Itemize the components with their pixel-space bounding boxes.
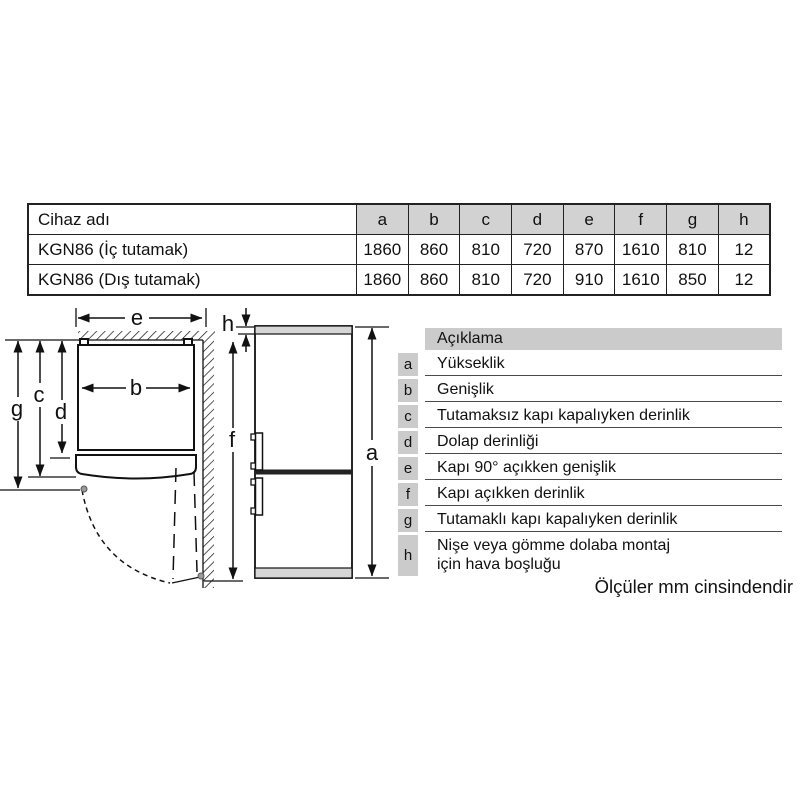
legend-text: Kapı 90° açıkken genişlik [425,457,782,480]
table-row: KGN86 (İç tutamak) 1860 860 810 720 870 … [28,235,770,265]
legend-title: Açıklama [425,328,782,350]
dim-label-e: e [131,305,143,330]
dim-label-g: g [11,396,23,421]
value-cell: 860 [408,265,460,296]
dim-label-h: h [222,311,234,336]
dim-label-d: d [55,399,67,424]
legend-item-h: h Nişe veya gömme dolaba montaj için hav… [398,535,782,576]
dim-label-f: f [229,427,236,452]
legend-item-f: f Kapı açıkken derinlik [398,483,782,506]
col-header-e: e [563,204,615,235]
fridge-top-cap [255,326,352,334]
legend-text: Dolap derinliği [425,431,782,454]
device-name-cell: KGN86 (Dış tutamak) [28,265,357,296]
value-cell: 720 [512,265,564,296]
dim-label-b: b [130,375,142,400]
value-cell: 860 [408,235,460,265]
legend-item-e: e Kapı 90° açıkken genişlik [398,457,782,480]
value-cell: 810 [460,265,512,296]
legend-key: e [398,457,418,480]
value-cell: 12 [718,265,770,296]
value-cell: 850 [667,265,719,296]
door-swing-arc [81,468,204,583]
dimension-a: a [355,327,389,578]
door-handle-lower [251,478,263,515]
legend-key: c [398,405,418,428]
value-cell: 810 [667,235,719,265]
fridge-top-view [76,339,196,479]
hinge-dot [81,486,87,492]
value-cell: 1610 [615,265,667,296]
spec-sheet-page: Cihaz adı a b c d e f g h KGN86 (İç tuta… [0,0,800,800]
legend-header-row: Açıklama [398,328,782,350]
legend-item-g: g Tutamaklı kapı kapalıyken derinlik [398,509,782,532]
value-cell: 1860 [357,265,409,296]
fridge-plinth [255,568,352,578]
legend-text: Yükseklik [425,353,782,376]
legend-key: g [398,509,418,532]
legend-text: Kapı açıkken derinlik [425,483,782,506]
legend-text: Genişlik [425,379,782,402]
legend-item-a: a Yükseklik [398,353,782,376]
legend-text: Tutamaksız kapı kapalıyken derinlik [425,405,782,428]
dim-label-c: c [34,382,45,407]
dimension-spec-table: Cihaz adı a b c d e f g h KGN86 (İç tuta… [27,203,771,296]
legend-key-empty [398,328,418,350]
col-header-b: b [408,204,460,235]
legend-key: d [398,431,418,454]
legend-text: Nişe veya gömme dolaba montaj için hava … [425,535,687,576]
value-cell: 810 [460,235,512,265]
legend-key: a [398,353,418,376]
legend-item-c: c Tutamaksız kapı kapalıyken derinlik [398,405,782,428]
col-header-g: g [667,204,719,235]
dimension-e: e [76,305,206,330]
col-header-a: a [357,204,409,235]
legend-item-d: d Dolap derinliği [398,431,782,454]
fridge-front-view [251,326,352,578]
dimension-diagram: e h g c d [0,300,400,610]
legend-text: Tutamaklı kapı kapalıyken derinlik [425,509,782,532]
value-cell: 720 [512,235,564,265]
door-handle-upper [251,433,263,470]
dimension-d: d [50,341,71,458]
device-name-cell: KGN86 (İç tutamak) [28,235,357,265]
col-header-h: h [718,204,770,235]
units-note: Ölçüler mm cinsindendir [400,576,793,598]
col-header-c: c [460,204,512,235]
legend-key: f [398,483,418,506]
value-cell: 1610 [615,235,667,265]
value-cell: 870 [563,235,615,265]
value-cell: 12 [718,235,770,265]
hinge-dot [198,573,204,579]
col-header-f: f [615,204,667,235]
legend-key: b [398,379,418,402]
col-header-d: d [512,204,564,235]
table-row: KGN86 (Dış tutamak) 1860 860 810 720 910… [28,265,770,296]
value-cell: 1860 [357,235,409,265]
legend-table: Açıklama a Yükseklik b Genişlik c Tutama… [398,328,782,579]
legend-key: h [398,535,418,576]
col-header-device-name: Cihaz adı [28,204,357,235]
legend-item-b: b Genişlik [398,379,782,402]
dim-label-a: a [366,440,379,465]
table-header-row: Cihaz adı a b c d e f g h [28,204,770,235]
value-cell: 910 [563,265,615,296]
